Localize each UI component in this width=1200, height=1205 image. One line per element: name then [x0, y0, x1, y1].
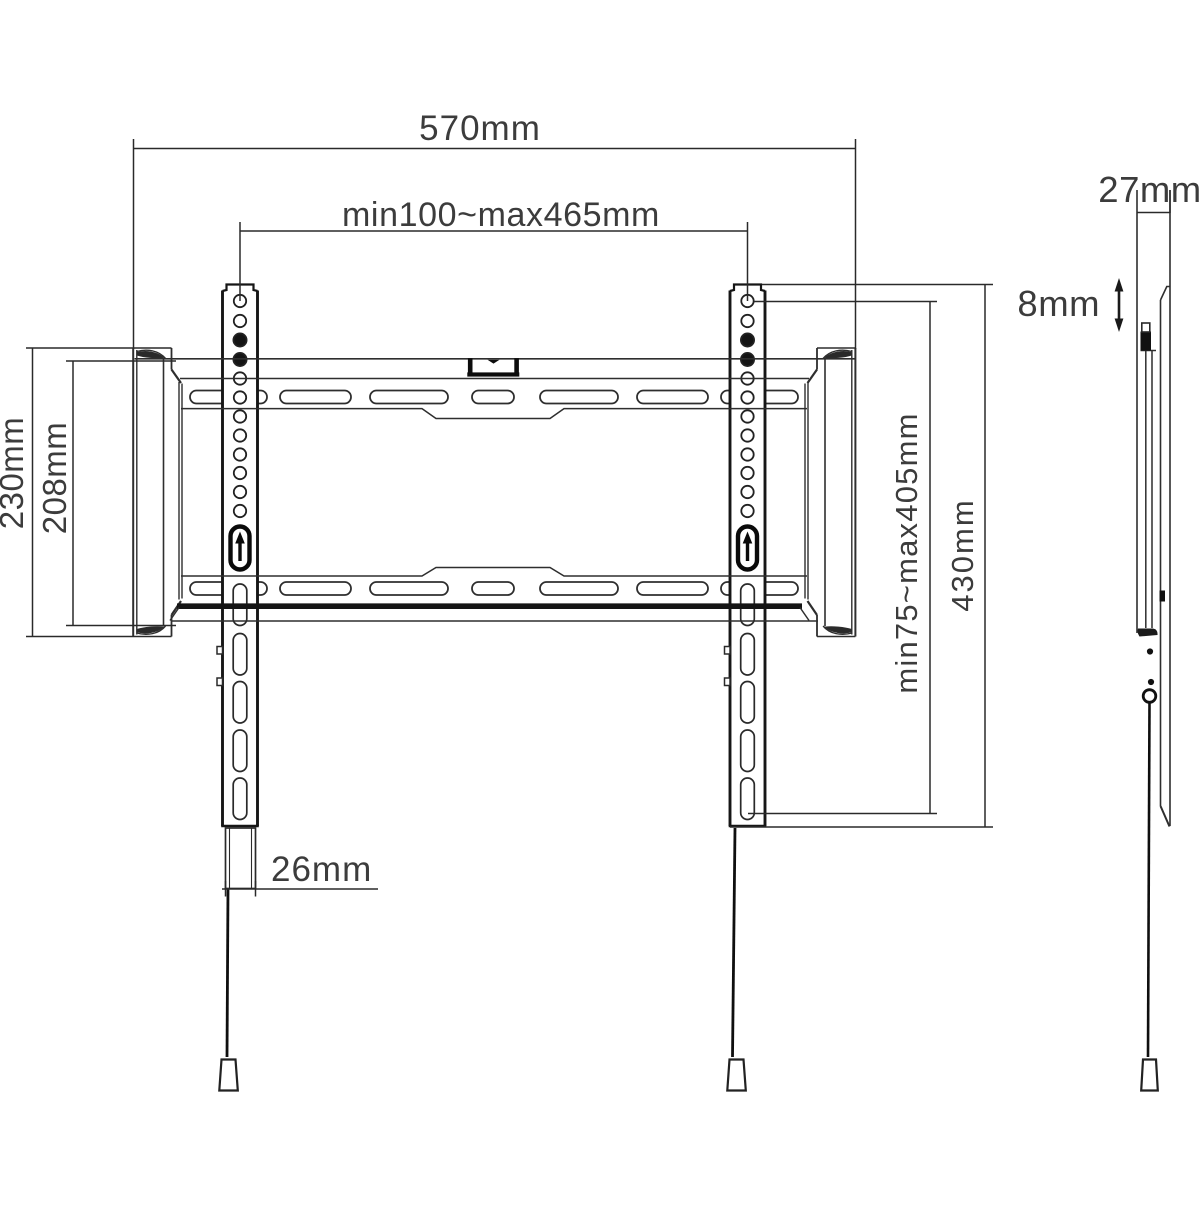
- svg-text:230mm: 230mm: [0, 417, 30, 530]
- svg-text:8mm: 8mm: [1017, 283, 1100, 324]
- svg-text:430mm: 430mm: [945, 498, 980, 611]
- svg-text:min100~max465mm: min100~max465mm: [342, 196, 660, 234]
- svg-text:208mm: 208mm: [36, 422, 73, 535]
- svg-text:26mm: 26mm: [271, 850, 372, 889]
- svg-text:27mm: 27mm: [1098, 169, 1200, 210]
- svg-text:570mm: 570mm: [419, 109, 541, 148]
- svg-text:min75~max405mm: min75~max405mm: [889, 412, 924, 693]
